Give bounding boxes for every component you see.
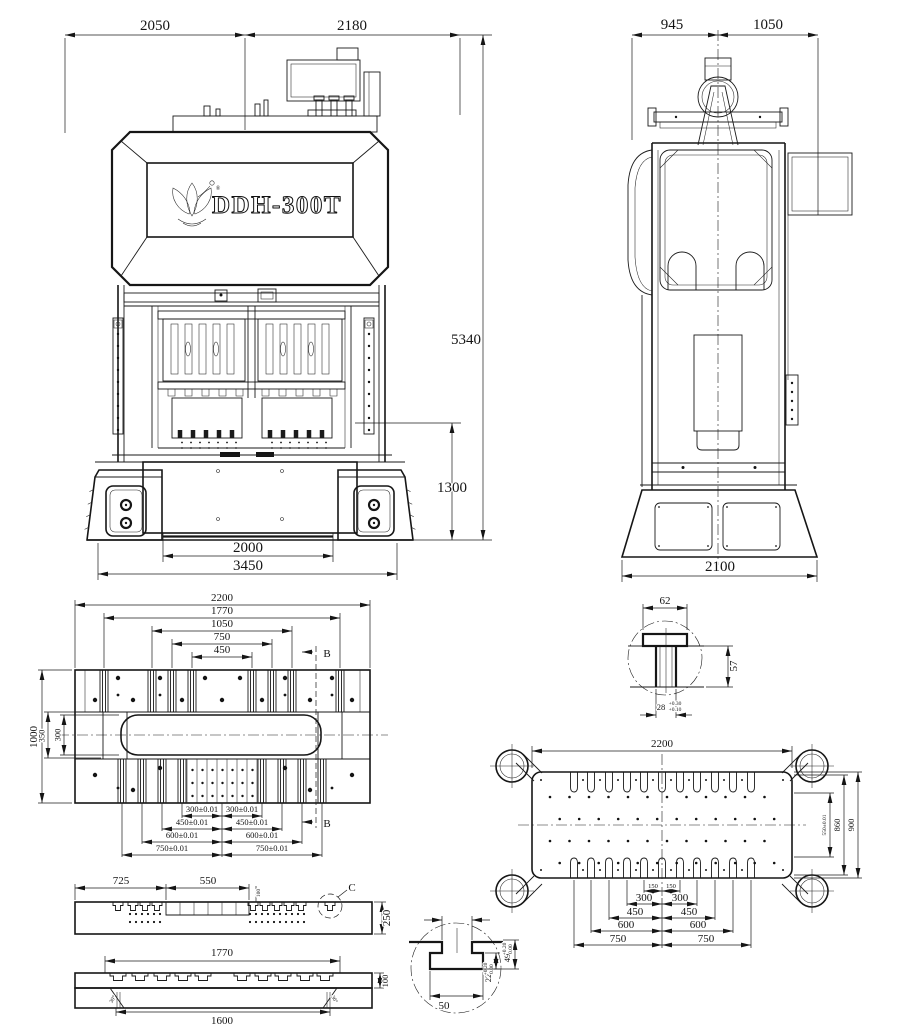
front-top-equipment (173, 48, 380, 132)
detail-c-callout: C (318, 882, 356, 918)
drawing-canvas: ® DDH-300T (0, 0, 900, 1028)
dim-secb-angle-right: 30° (329, 994, 339, 1004)
dim-slide-550: 550±0.01 (822, 814, 828, 835)
dim-bolster-750r: 750±0.01 (256, 843, 288, 853)
dim-slide-750l: 750 (610, 933, 627, 945)
section-label-b-top: B (323, 648, 330, 660)
dim-front-2000: 2000 (233, 540, 263, 556)
dim-tslot-50: 50 (439, 1000, 451, 1012)
dim-slide-450r: 450 (681, 906, 698, 918)
dim-seca-250: 250 (381, 909, 393, 926)
dim-slide-600r: 600 (690, 919, 707, 931)
bolster-top-slots (100, 670, 344, 712)
section-a-tslots (113, 902, 335, 911)
dim-slide-860: 860 (832, 819, 842, 832)
guide-bushing-br (790, 869, 834, 913)
tslot-detail: 50 22 +0.20 0.00 49 +0.20 0.00 (409, 916, 519, 1013)
dim-side-945: 945 (661, 17, 684, 33)
dim-slide-600l: 600 (618, 919, 635, 931)
dim-front-3450: 3450 (233, 558, 263, 574)
dim-bolster-600r: 600±0.01 (246, 830, 278, 840)
tslot-dimensions: 50 22 +0.20 0.00 49 +0.20 0.00 (424, 916, 519, 1012)
dim-slide-300r: 300 (672, 892, 689, 904)
guide-bushing-bl (490, 869, 534, 913)
dim-slide-150l: 150 (648, 883, 658, 890)
dim-secb-100: 100 (380, 975, 390, 988)
dim-front-5340: 5340 (451, 332, 481, 348)
section-label-b-bottom: B (323, 818, 330, 830)
dim-seca-550: 550 (200, 875, 217, 887)
front-base (85, 455, 416, 540)
dim-bolster-450l: 450±0.01 (176, 817, 208, 827)
bolster-section-view-2: 1770 30° 30° 1600 100 (75, 947, 390, 1027)
dim-bolster-350: 350 (37, 730, 47, 743)
dim-secb-angle-left: 30° (108, 994, 118, 1004)
dim-tslot-49-group: 49 +0.20 0.00 (502, 942, 514, 962)
dim-bolster-300l: 300±0.01 (186, 804, 218, 814)
dim-tslot-49-tol-lower: 0.00 (508, 944, 514, 954)
brand-logo: ® DDH-300T (173, 181, 342, 226)
dim-seca-725: 725 (113, 875, 130, 887)
bolster-section-view: C 725 550 100 250 (75, 875, 393, 934)
dim-front-1300: 1300 (437, 480, 467, 496)
dim-slide-150r: 150 (666, 883, 676, 890)
dim-bolster-750: 750 (214, 631, 231, 643)
dim-slide-450l: 450 (627, 906, 644, 918)
dim-secb-1770: 1770 (211, 947, 234, 959)
guide-bushing-tl (490, 744, 534, 788)
dim-side-1050: 1050 (753, 17, 783, 33)
dim-tslot-22-group: 22 +0.20 0.00 (483, 962, 495, 982)
dim-bolster-600l: 600±0.01 (166, 830, 198, 840)
section-b-dimensions-top: 1770 (105, 947, 340, 973)
drawing-sheet: ® DDH-300T (0, 0, 900, 1028)
dim-seca-100: 100 (256, 889, 262, 898)
front-view: ® DDH-300T (65, 18, 492, 580)
bolster-top-view: B B 2200 1770 1050 750 450 1000 350 300 (28, 592, 388, 857)
side-view: 945 1050 2100 (622, 17, 852, 582)
slide-bottom-view: 2200 900 860 550±0.01 150 150 300 300 45… (490, 738, 862, 948)
dim-tnut-62: 62 (660, 595, 671, 607)
side-body (628, 143, 852, 490)
dim-bolster-300r: 300±0.01 (226, 804, 258, 814)
dim-secb-1600: 1600 (211, 1015, 234, 1027)
tnut-detail: 62 57 28 +0.30 +0.10 (628, 595, 740, 718)
dim-bolster-1770: 1770 (211, 605, 234, 617)
front-pipes (308, 96, 356, 116)
side-base (622, 485, 817, 557)
dim-bolster-300v: 300 (53, 729, 63, 742)
dim-tnut-57: 57 (728, 660, 740, 672)
dim-slide-300l: 300 (636, 892, 653, 904)
dim-front-2180: 2180 (337, 18, 367, 34)
detail-label-c: C (348, 882, 355, 894)
dim-side-2100: 2100 (705, 559, 735, 575)
dim-bolster-750l: 750±0.01 (156, 843, 188, 853)
guide-bushing-tr (790, 744, 834, 788)
dim-slide-900: 900 (846, 819, 856, 832)
section-b-dimensions-bottom: 1600 100 (116, 973, 390, 1027)
front-columns (113, 285, 385, 462)
section-b-tslots (110, 973, 333, 981)
dim-bolster-450: 450 (214, 644, 231, 656)
front-dimensions: 2050 2180 5340 1300 2000 3450 (65, 18, 492, 580)
dim-tnut-28-tol-lower: +0.10 (669, 707, 682, 713)
dim-bolster-2200: 2200 (211, 592, 234, 604)
dim-front-2050: 2050 (140, 18, 170, 34)
dim-bolster-1050: 1050 (211, 618, 234, 630)
dim-tnut-28: 28 (657, 702, 666, 712)
dim-bolster-450r: 450±0.01 (236, 817, 268, 827)
logo-registered-mark: ® (216, 185, 221, 192)
dim-slide-2200: 2200 (651, 738, 674, 750)
logo-model-text: DDH-300T (212, 192, 342, 219)
logo-flower-icon (173, 181, 215, 226)
dim-slide-750r: 750 (698, 933, 715, 945)
